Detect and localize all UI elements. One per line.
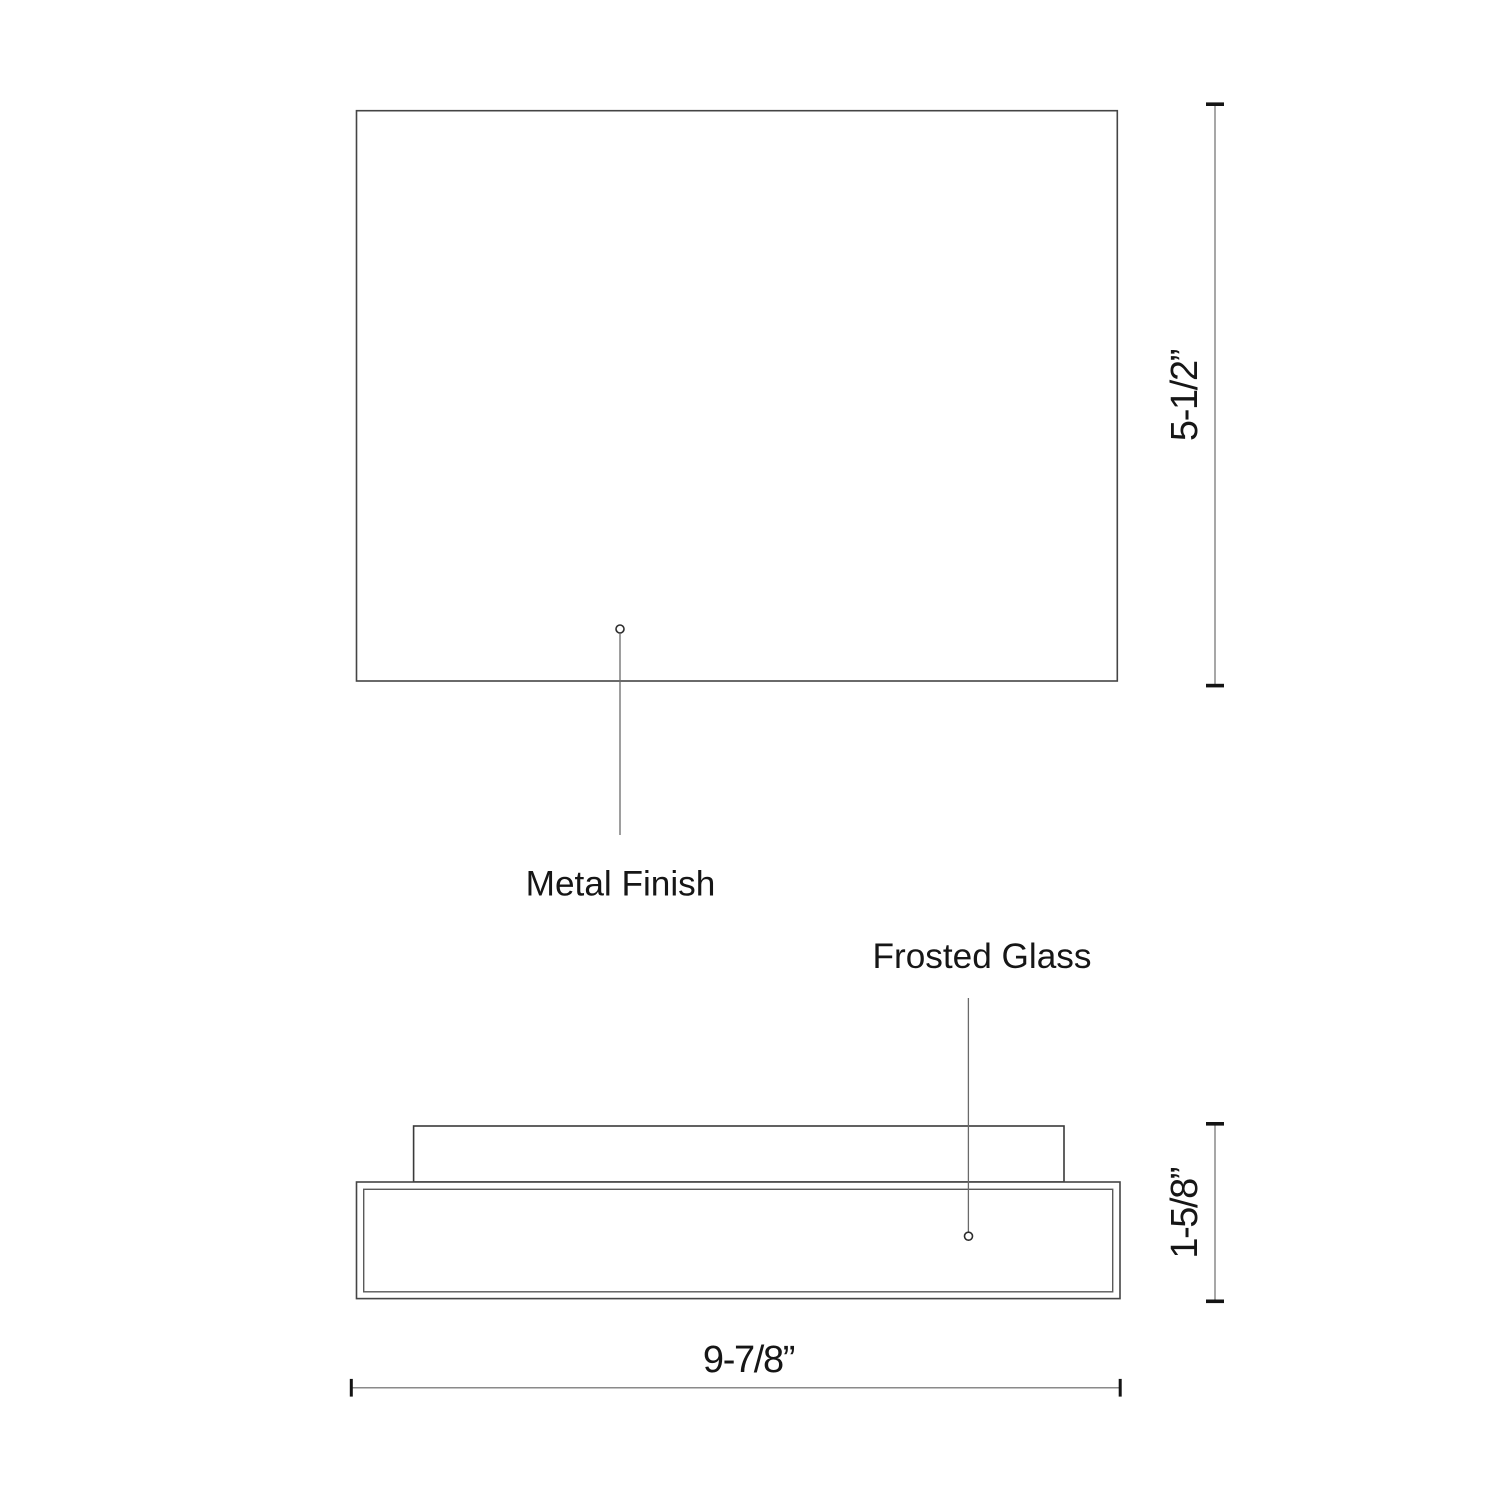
- svg-text:5-1/2”: 5-1/2”: [1164, 349, 1206, 441]
- svg-text:1-5/8”: 1-5/8”: [1164, 1167, 1206, 1258]
- svg-text:Metal Finish: Metal Finish: [526, 864, 716, 903]
- svg-text:9-7/8”: 9-7/8”: [703, 1339, 795, 1381]
- svg-text:Frosted Glass: Frosted Glass: [872, 937, 1091, 976]
